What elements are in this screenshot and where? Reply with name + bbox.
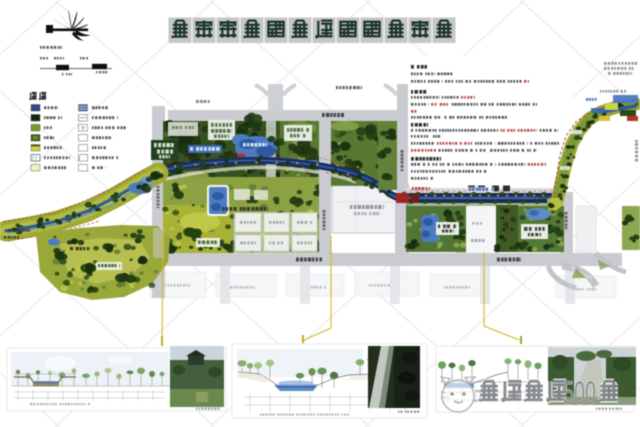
svg-text:500: 500 — [563, 375, 596, 411]
